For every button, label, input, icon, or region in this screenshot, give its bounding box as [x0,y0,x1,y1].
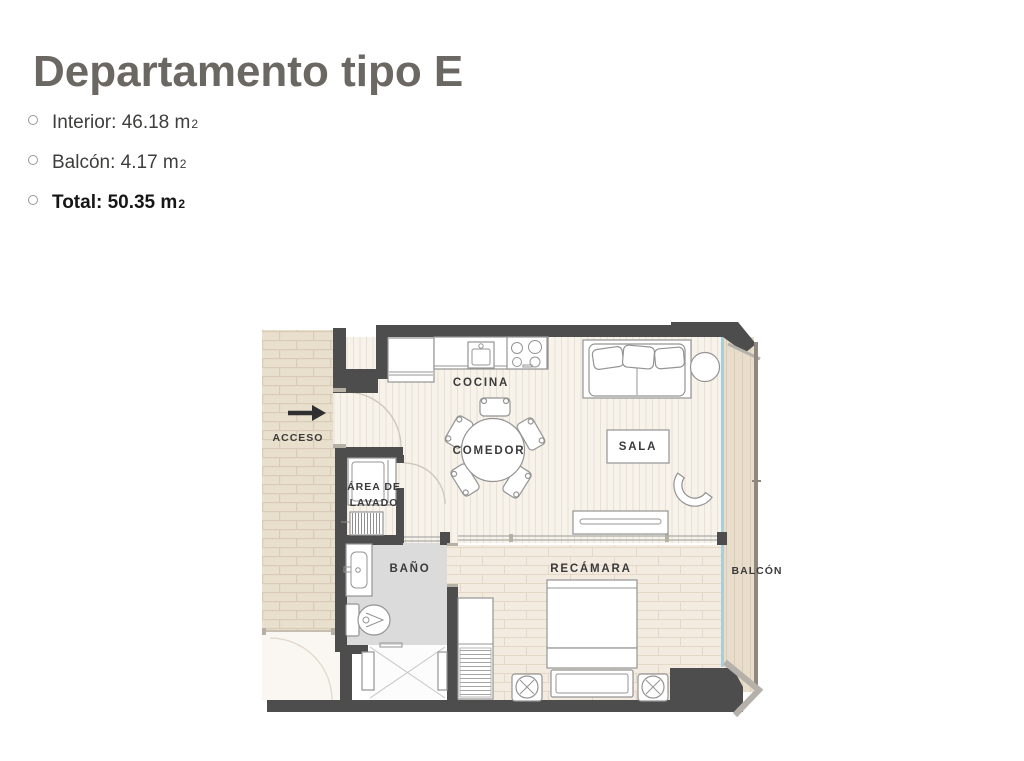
glass-wall-bedroom [721,545,724,667]
wall-window-nub-right [717,532,727,545]
spec-interior-text: Interior: 46.18 m [52,112,190,134]
label-recamara: RECÁMARA [550,562,631,575]
dining-chair [480,398,510,416]
bed [547,580,637,697]
sofa [583,340,691,398]
bullet-icon [28,155,38,165]
spec-interior: Interior: 46.18 m2 [28,112,198,134]
balcony-floor [724,337,754,692]
wall-laundry-right-a [396,455,404,463]
label-bano: BAÑO [389,562,430,575]
entry-floor [333,393,346,447]
wall-kitchen-leg [376,337,388,379]
wall-bottom [267,700,740,712]
superscript: 2 [180,157,187,171]
wall-top [376,325,671,337]
tv-console [573,511,668,534]
floor-plan: COCINA COMEDOR SALA ACCESO ÁREA DE LAVAD… [262,322,792,723]
page-title: Departamento tipo E [33,47,463,97]
wall-entry-foot [346,369,378,393]
spec-total-text: Total: 50.35 m [52,192,177,214]
wall-entry-left [333,328,346,393]
label-cocina: COCINA [453,377,509,389]
spec-balcon-text: Balcón: 4.17 m [52,152,179,174]
label-acceso: ACCESO [273,432,324,444]
wall-balcony-block [670,668,743,712]
label-comedor: COMEDOR [453,445,526,457]
superscript: 2 [178,197,185,211]
corridor-lower-floor [262,630,340,700]
wall-bath-right [447,587,458,700]
label-balcon: BALCÓN [732,564,783,577]
label-sala: SALA [619,441,658,453]
side-table [691,353,720,382]
nightstand [512,674,542,701]
closet [458,598,493,699]
nightstand [638,674,668,701]
glass-walls [721,337,724,667]
bullet-icon [28,115,38,125]
label-area-de-lavado-2: LAVADO [350,497,399,509]
superscript: 2 [191,117,198,131]
wall-laundry-top [335,447,403,458]
spec-balcon: Balcón: 4.17 m2 [28,152,198,174]
label-area-de-lavado-1: ÁREA DE [347,480,401,493]
glass-wall-living [721,337,724,543]
spec-total: Total: 50.35 m2 [28,192,198,214]
acceso-corridor-floor [262,330,335,630]
toilet [346,604,390,636]
spec-list: Interior: 46.18 m2 Balcón: 4.17 m2 Total… [28,112,198,232]
bullet-icon [28,195,38,205]
wall-laundry-left [335,447,347,652]
bath-sink [344,544,372,596]
